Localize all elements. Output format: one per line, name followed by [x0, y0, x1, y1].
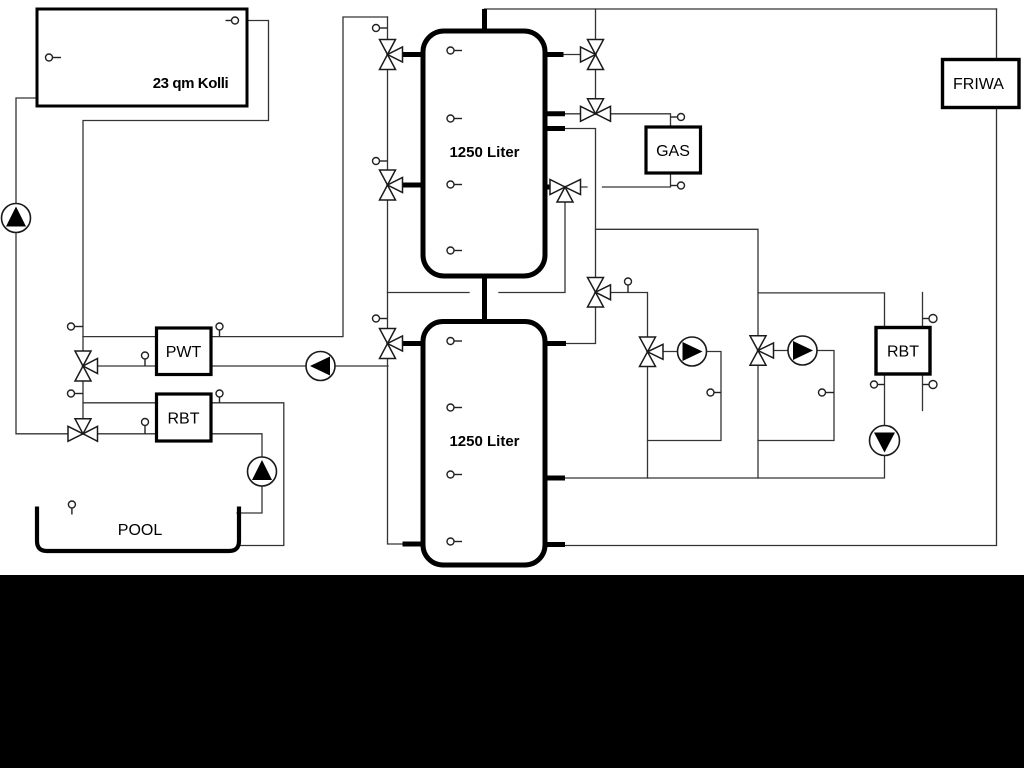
svg-text:1250 Liter: 1250 Liter	[449, 144, 519, 161]
svg-text:RBT: RBT	[887, 344, 919, 361]
svg-text:23 qm Kolli: 23 qm Kolli	[153, 75, 229, 92]
svg-text:PWT: PWT	[166, 344, 202, 361]
svg-text:1250 Liter: 1250 Liter	[449, 433, 519, 450]
svg-text:GAS: GAS	[656, 143, 690, 160]
svg-text:POOL: POOL	[118, 522, 163, 539]
svg-text:FRIWA: FRIWA	[953, 76, 1004, 93]
svg-text:RBT: RBT	[168, 411, 200, 428]
